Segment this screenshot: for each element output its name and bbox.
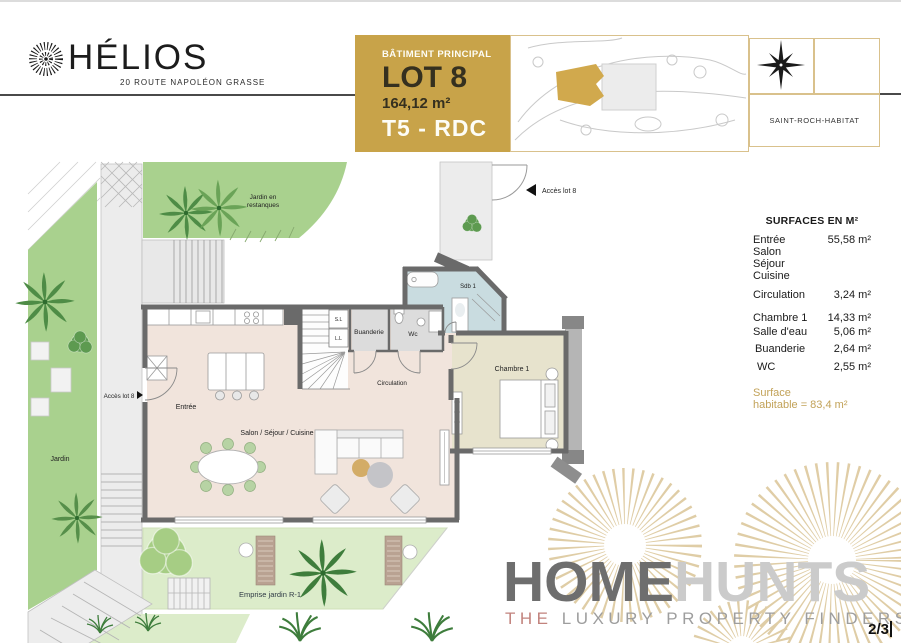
surfaces-row: WC 2,55 m² xyxy=(753,361,871,373)
surface-habitable-total: Surface habitable = 83,4 m² xyxy=(753,387,871,411)
surfaces-row: Salle d'eau 5,06 m² xyxy=(753,326,871,338)
surfaces-row: Entrée Salon Séjour Cuisine 55,58 m² xyxy=(753,234,871,282)
brand-hunts: HUNTS xyxy=(674,550,870,614)
developer-logo-name: HÉLIOS xyxy=(68,38,208,78)
label-acces-top: Accès lot 8 xyxy=(542,188,576,195)
label-circulation: Circulation xyxy=(377,380,407,387)
brand-tagline: THE LUXURY PROPERTY FINDERS xyxy=(505,609,901,629)
site-plan-box xyxy=(510,35,749,152)
lot-number: LOT 8 xyxy=(382,62,511,94)
label-entree: Entrée xyxy=(176,404,197,411)
label-sl: S.L xyxy=(335,317,343,323)
grass-tuft xyxy=(411,612,453,641)
surface-value: 2,64 m² xyxy=(834,343,871,355)
label-emprise: Emprise jardin R-1 xyxy=(239,590,301,599)
surfaces-row: Buanderie 2,64 m² xyxy=(753,343,871,355)
floorplan-page: Jardin en restanques Accès lot 8 Accès l… xyxy=(0,0,901,643)
compass-box xyxy=(749,38,814,94)
label-jardin: Jardin xyxy=(50,456,69,463)
brand-home: HOME xyxy=(503,550,674,614)
surface-value: 14,33 m² xyxy=(828,312,871,324)
surface-value: 55,58 m² xyxy=(828,234,871,246)
label-acces-left: Accès lot 8 xyxy=(104,393,135,400)
terrace-stairs xyxy=(168,578,210,609)
agency-box: SAINT-ROCH-HABITAT xyxy=(749,94,880,147)
svg-text:restanques: restanques xyxy=(247,202,280,209)
access-path xyxy=(101,164,142,617)
label-buanderie: Buanderie xyxy=(354,329,384,336)
lot-info-card: BÂTIMENT PRINCIPAL LOT 8 164,12 m² T5 - … xyxy=(355,35,511,152)
arrow-left-icon xyxy=(526,184,536,196)
surfaces-row: Circulation 3,24 m² xyxy=(753,289,871,301)
label-sdb: Sdb 1 xyxy=(460,284,476,290)
surface-value: 3,24 m² xyxy=(834,289,871,301)
surface-value: 5,06 m² xyxy=(834,326,871,338)
helios-sunburst-icon xyxy=(33,46,59,72)
label-salon: Salon / Séjour / Cuisine xyxy=(240,430,313,437)
brand-logo: HOMEHUNTS xyxy=(503,549,870,615)
text-cursor xyxy=(890,621,892,637)
radiator xyxy=(440,430,449,485)
garden-left xyxy=(28,182,97,610)
label-chambre: Chambre 1 xyxy=(495,366,530,373)
page-indicator: 2/3 xyxy=(868,621,892,638)
lot-type: T5 - RDC xyxy=(382,115,511,142)
upper-stair-terrace xyxy=(142,240,224,303)
header-divider xyxy=(0,94,356,96)
label-ll: L.L xyxy=(335,336,342,342)
grass-tuft xyxy=(279,612,321,641)
exterior-door-arc xyxy=(492,165,527,200)
label-jardin-restanques: Jardin en xyxy=(250,194,277,201)
surfaces-table: SURFACES EN M² Entrée Salon Séjour Cuisi… xyxy=(753,203,871,418)
surfaces-title: SURFACES EN M² xyxy=(753,215,871,227)
label-wc: Wc xyxy=(408,331,418,338)
surface-value: 2,55 m² xyxy=(834,361,871,373)
header-divider-right xyxy=(879,93,901,95)
lot-area: 164,12 m² xyxy=(382,95,511,112)
wall-block xyxy=(284,306,300,325)
building-name: BÂTIMENT PRINCIPAL xyxy=(382,49,511,60)
agency-label: SAINT-ROCH-HABITAT xyxy=(769,116,859,125)
surfaces-row: Chambre 1 14,33 m² xyxy=(753,312,871,324)
dining-set xyxy=(191,439,266,496)
header-empty-box xyxy=(814,38,880,94)
access-path-top xyxy=(440,162,492,260)
developer-address: 20 ROUTE NAPOLÉON GRASSE xyxy=(120,78,265,87)
